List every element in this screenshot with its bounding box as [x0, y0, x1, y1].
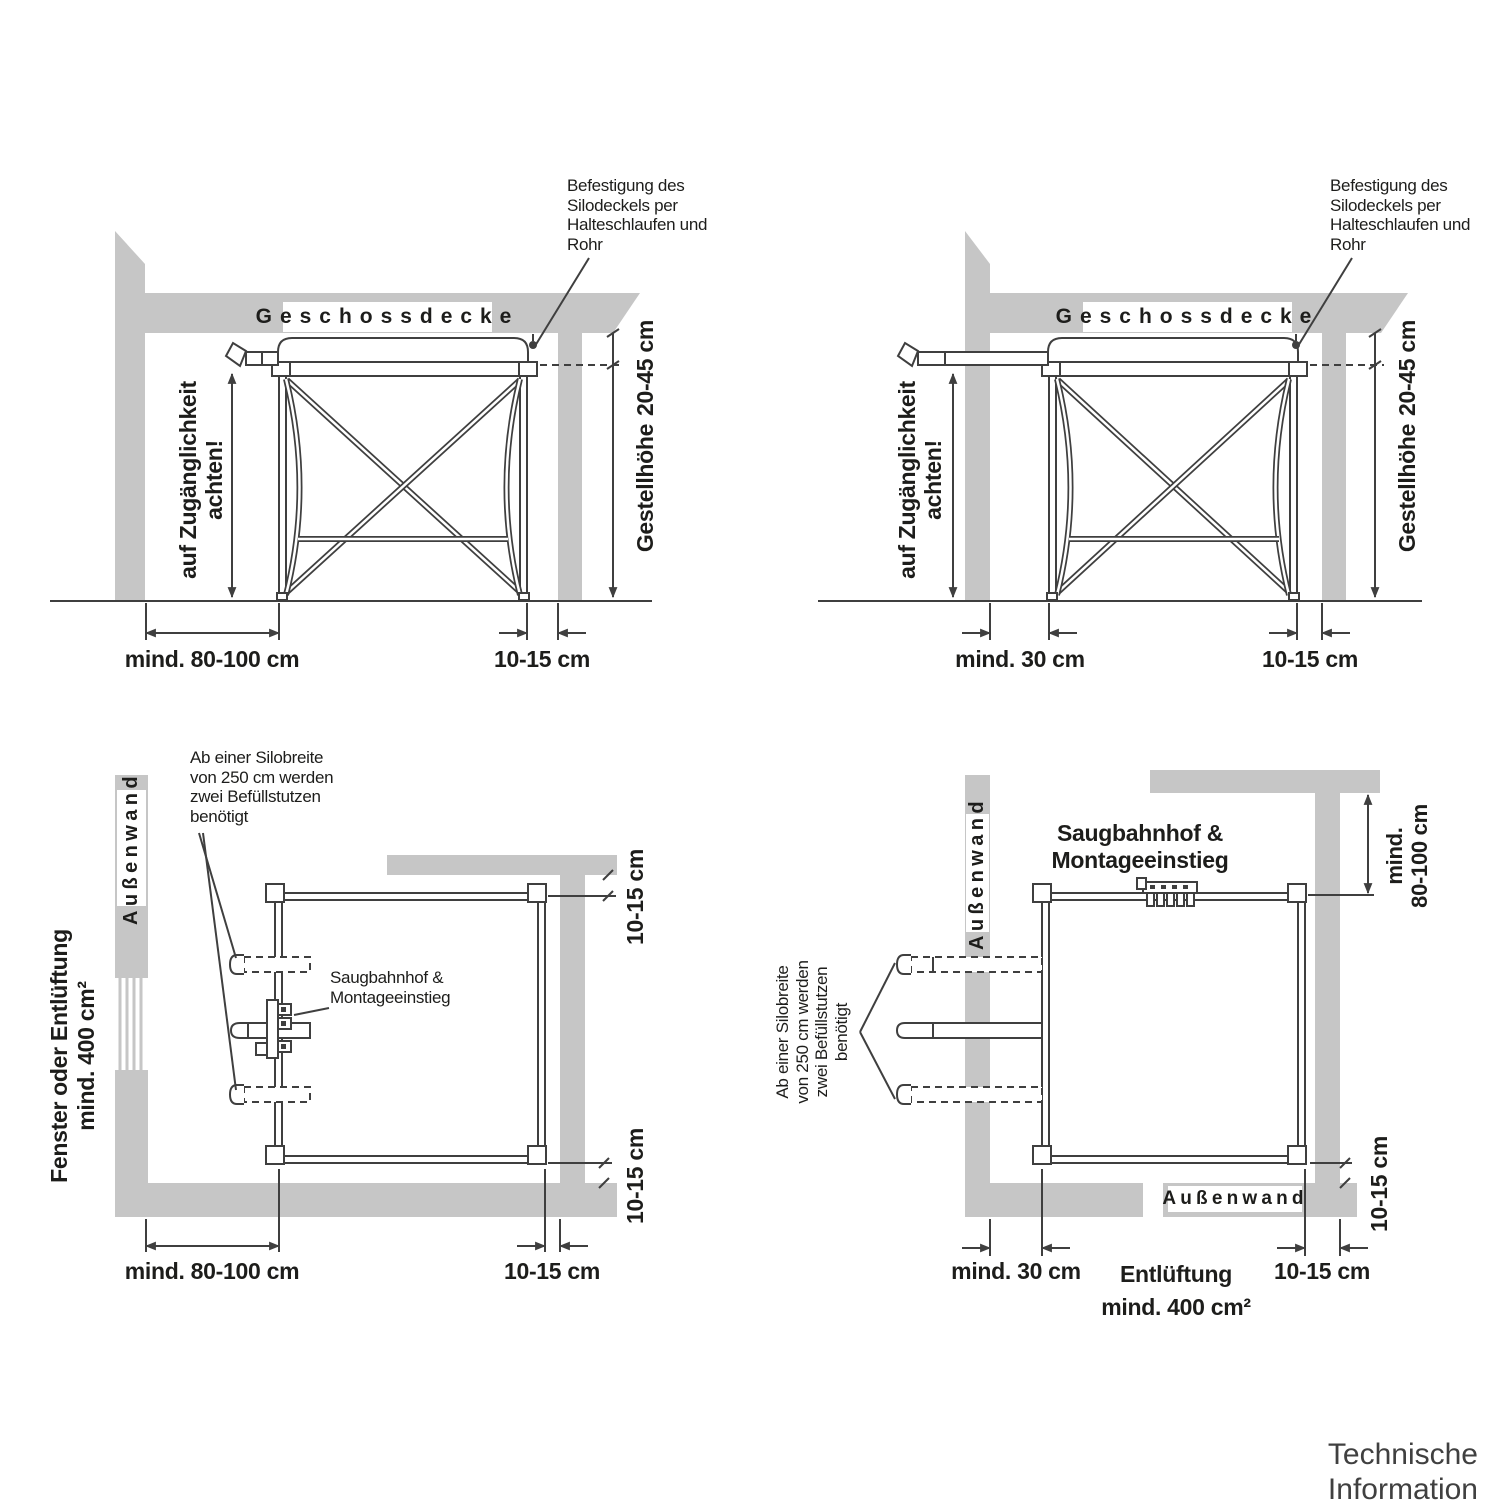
page-title: Technische Information — [1178, 1438, 1478, 1500]
accessibility-note: auf Zugänglichkeit achten! — [187, 350, 215, 610]
dim-frame-height: Gestellhöhe — [632, 418, 658, 558]
top-left-diagram — [50, 231, 652, 640]
dim-gap-bottom-right: 10-15 cm — [1242, 1258, 1402, 1284]
ceiling-label-box: Geschossdecke — [283, 302, 492, 332]
ceiling-label-box: Geschossdecke — [1083, 302, 1292, 332]
frame-right-foot — [519, 593, 529, 600]
silo-top-view — [897, 878, 1306, 1164]
dim-clearance-left: mind. 30 cm — [940, 646, 1100, 672]
frame-left-foot — [277, 593, 287, 600]
vent-opening — [1143, 1183, 1163, 1217]
lid-fastening-point — [529, 334, 537, 349]
nozzle-leader-line — [860, 963, 895, 1032]
silo-top-view — [230, 884, 546, 1164]
frame-left-foot — [1047, 593, 1057, 600]
technical-information-sheet: Befestigung des Silodeckels per Haltesch… — [0, 0, 1500, 1500]
ceiling-label: Geschossdecke — [256, 305, 520, 329]
suction-port-connector — [1137, 878, 1197, 906]
frame-left-post — [279, 376, 286, 597]
nozzle-leader-line — [860, 1032, 895, 1099]
suction-port-label: Saugbahnhof & Montageeinstieg — [1040, 820, 1240, 874]
walls-and-ceiling — [965, 231, 1408, 601]
silo-assembly — [226, 334, 537, 600]
window-vent-note: Fenster oder Entlüftung mind. 400 cm² — [45, 926, 101, 1186]
outer-wall-label: Außenwand — [966, 797, 989, 950]
ceiling-label: Geschossdecke — [1056, 305, 1320, 329]
corner-post — [1033, 884, 1051, 902]
corner-post — [1288, 1146, 1306, 1164]
silo-assembly — [898, 334, 1307, 600]
dim-gap-top: 20-45 cm — [1394, 313, 1420, 423]
corner-post — [528, 884, 546, 902]
frame-top-bar — [1042, 362, 1307, 376]
dim-clearance-bottom: mind. 80-100 cm — [122, 1258, 302, 1284]
fastening-note: Befestigung des Silodeckels per Haltesch… — [1330, 176, 1480, 254]
dim-gap-right-side: 10-15 cm — [1367, 1134, 1391, 1234]
suction-port-label: Saugbahnhof & Montageeinstieg — [330, 968, 500, 1007]
dim-frame-height: Gestellhöhe — [1394, 418, 1420, 558]
outer-wall-label: Außenwand — [1162, 1188, 1307, 1210]
dim-gap-top: 20-45 cm — [632, 313, 658, 423]
silo-cover-pillow — [1048, 338, 1298, 362]
silo-width-note: Ab einer Silobreite von 250 cm werden zw… — [772, 932, 852, 1132]
silo-width-note: Ab einer Silobreite von 250 cm werden zw… — [190, 748, 375, 826]
corner-post — [266, 1146, 284, 1164]
frame-right-post — [1290, 376, 1297, 597]
dim-gap-top-right: 10-15 cm — [623, 847, 647, 947]
dim-clearance-right: 10-15 cm — [1230, 646, 1390, 672]
outer-wall-label-box: Außenwand — [117, 790, 146, 906]
corner-post — [1033, 1146, 1051, 1164]
corner-post — [1288, 884, 1306, 902]
pipe-elbow — [226, 343, 246, 366]
dim-clearance-bottom-left: mind. 30 cm — [936, 1258, 1096, 1284]
corner-post — [266, 884, 284, 902]
outer-wall-label-box-left: Außenwand — [966, 814, 989, 932]
frame-right-post — [520, 376, 527, 597]
dim-clearance-right: 10-15 cm — [462, 646, 622, 672]
frame-top-bar — [272, 362, 537, 376]
silo-outline-outer — [1042, 893, 1305, 1163]
silo-cover-pillow — [278, 338, 528, 362]
dim-gap-bottom-right: 10-15 cm — [472, 1258, 632, 1284]
dim-access-top: mind. 80-100 cm — [1381, 796, 1433, 916]
fill-pipe — [226, 343, 278, 366]
corner-post — [528, 1146, 546, 1164]
frame-left-post — [1049, 376, 1056, 597]
bottom-left-diagram — [115, 775, 617, 1252]
outer-wall-label: Außenwand — [120, 772, 143, 925]
dim-gap-bottom-side: 10-15 cm — [623, 1126, 647, 1226]
silo-outline-outer — [275, 893, 545, 1163]
accessibility-note: auf Zugänglichkeit achten! — [906, 350, 934, 610]
fastening-note: Befestigung des Silodeckels per Haltesch… — [567, 176, 717, 254]
dim-clearance-left: mind. 80-100 cm — [122, 646, 302, 672]
outer-wall-label-box-bottom: Außenwand — [1168, 1186, 1302, 1212]
frame-right-foot — [1289, 593, 1299, 600]
